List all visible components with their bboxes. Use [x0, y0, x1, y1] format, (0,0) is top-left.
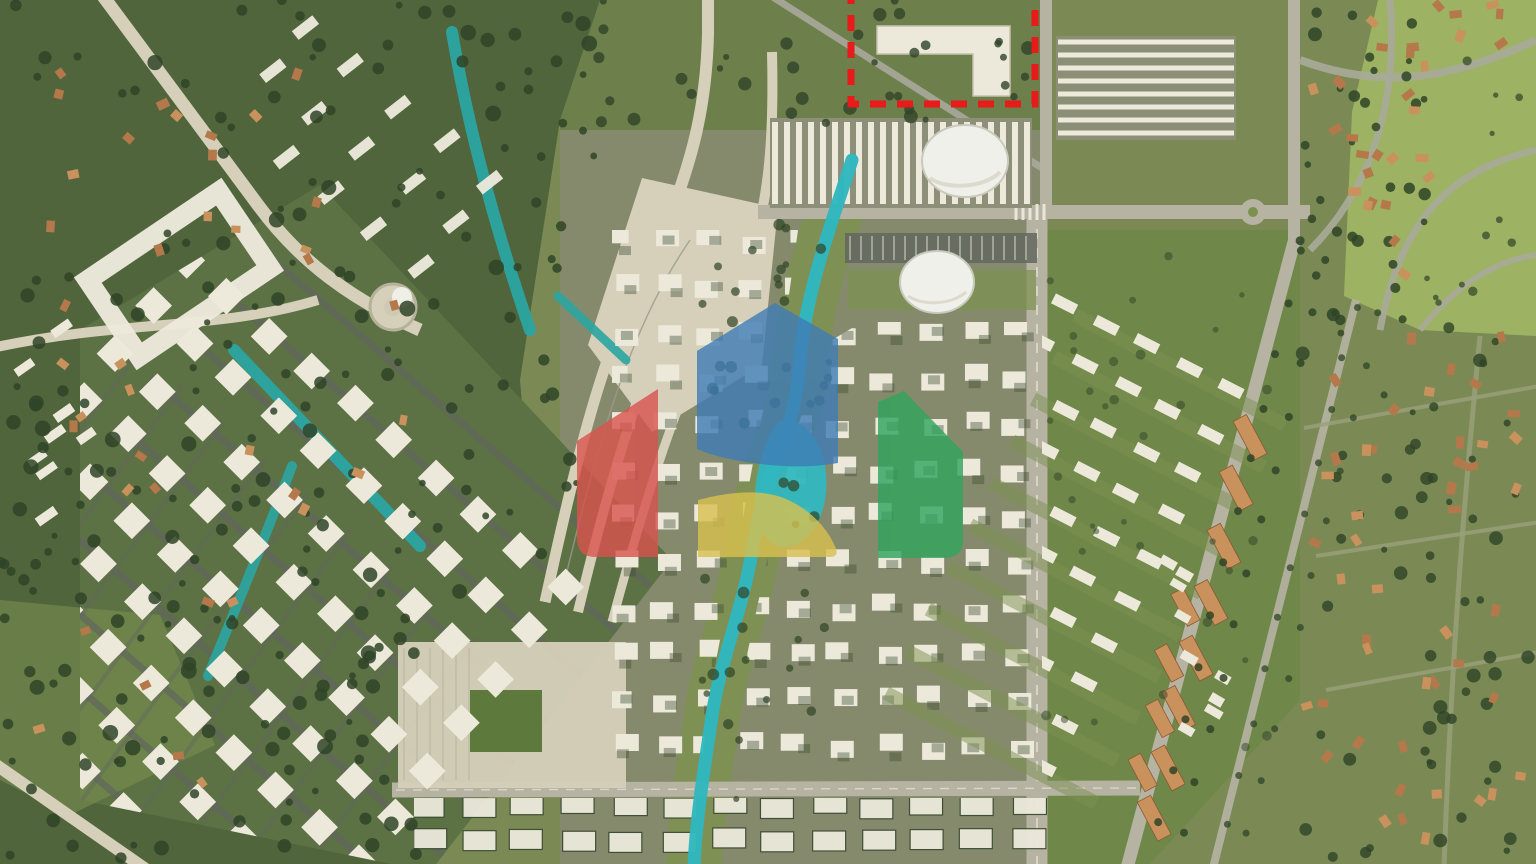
- masterplan-aerial-image: [0, 0, 1536, 864]
- aerial-render-viewport: [0, 0, 1536, 864]
